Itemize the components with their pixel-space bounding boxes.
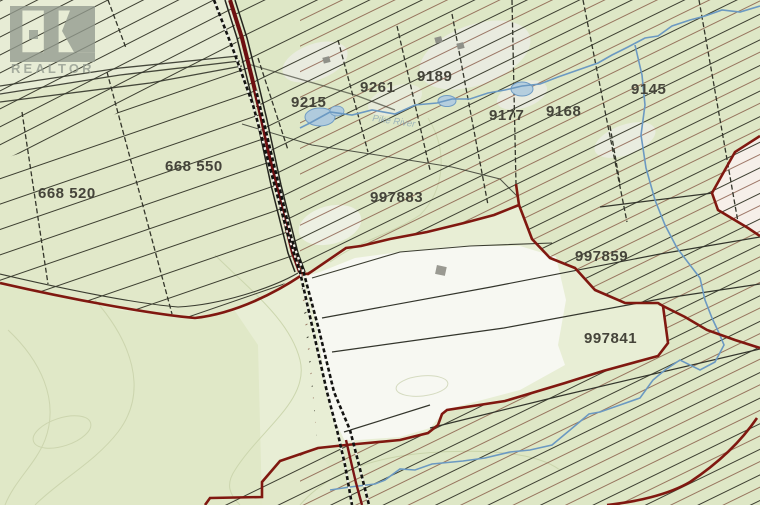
svg-text:9189: 9189 — [417, 68, 452, 85]
svg-text:9177: 9177 — [489, 107, 524, 124]
svg-text:997883: 997883 — [370, 189, 423, 206]
svg-text:9215: 9215 — [291, 94, 326, 111]
svg-text:9261: 9261 — [360, 79, 395, 96]
svg-text:REALTOR: REALTOR — [11, 61, 94, 76]
svg-text:997841: 997841 — [584, 330, 637, 347]
svg-text:668 520: 668 520 — [38, 185, 96, 202]
svg-text:668 550: 668 550 — [165, 158, 223, 175]
svg-text:9168: 9168 — [546, 103, 581, 120]
svg-text:9145: 9145 — [631, 81, 666, 98]
svg-text:997859: 997859 — [575, 248, 628, 265]
